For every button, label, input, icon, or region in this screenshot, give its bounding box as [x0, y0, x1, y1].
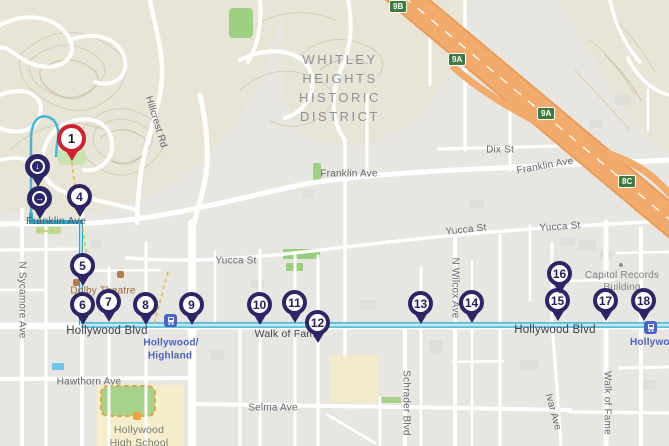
pin-tail: [554, 284, 566, 294]
pin-tail: [34, 209, 46, 219]
pin-tail: [77, 315, 89, 325]
street-label-hollywood-east: Hollywood Blvd: [514, 324, 595, 336]
pin-tail: [254, 315, 266, 325]
exit-shield-9b: 9B: [389, 0, 407, 13]
pin-tail: [312, 333, 324, 343]
pin-tail: [103, 312, 115, 322]
school-line1: Hollywood: [114, 424, 164, 436]
pin-tail: [289, 313, 301, 323]
map-canvas[interactable]: WHITLEY HEIGHTS HISTORIC DISTRICT Frankl…: [0, 0, 669, 446]
pin-number: 15: [551, 294, 564, 308]
street-label-selma: Selma Ave: [248, 403, 297, 414]
tour-pin-6[interactable]: 6: [70, 292, 95, 325]
pin-tail: [140, 315, 152, 325]
tour-pin-4[interactable]: 4: [67, 184, 92, 217]
street-label-hollywood-west: Hollywood Blvd: [66, 325, 147, 337]
pin-number: 10: [253, 298, 266, 312]
tour-pin-16[interactable]: 16: [547, 261, 572, 294]
pin-number: 16: [553, 267, 566, 281]
train-icon: [166, 316, 176, 326]
pin-tail: [77, 276, 89, 286]
pin-number: 11: [288, 296, 301, 310]
pin-tail: [415, 314, 427, 324]
pin-tail: [66, 151, 78, 161]
pin-number: 5: [79, 259, 86, 273]
church-block: [330, 355, 378, 403]
pin-number: 13: [414, 297, 427, 311]
tour-pin-9[interactable]: 9: [179, 292, 204, 325]
street-label-franklin-mid: Franklin Ave: [320, 169, 377, 180]
street-label-schrader: Schrader Blvd: [401, 370, 412, 435]
pin-number: 4: [76, 190, 83, 204]
street-label-yucca-west: Yucca St: [215, 256, 256, 267]
tour-pin-10[interactable]: 10: [247, 292, 272, 325]
pin-number: 18: [637, 294, 650, 308]
theatre-icon: [117, 271, 124, 278]
capitol-poi-dot: [619, 263, 623, 267]
poi-label-hollywood-high-school: Hollywood High School: [94, 424, 184, 446]
exit-shield-9a-north: 9A: [448, 53, 466, 66]
street-label-sycamore: N Sycamore Ave: [17, 261, 28, 338]
pin-tail: [638, 311, 650, 321]
street-label-walk-of-fame-vertical: Walk of Fame: [602, 371, 613, 435]
tour-pin-1[interactable]: 1: [57, 124, 86, 161]
tour-pin-8[interactable]: 8: [133, 292, 158, 325]
district-label: WHITLEY HEIGHTS HISTORIC DISTRICT: [299, 50, 381, 126]
metro-station-hollywood-vine-icon[interactable]: [644, 321, 657, 334]
tour-pin-7[interactable]: 7: [96, 289, 121, 322]
pin-number: 9: [188, 298, 195, 312]
pin-number: 12: [311, 316, 324, 330]
circle-down-arrow-icon: ↓: [30, 159, 45, 174]
pin-number: 7: [105, 295, 112, 309]
school-icon: [133, 412, 141, 420]
tour-pin-14[interactable]: 14: [459, 290, 484, 323]
pin-number: 8: [142, 298, 149, 312]
pin-tail: [186, 315, 198, 325]
pin-tail: [552, 311, 564, 321]
pin-number: 6: [79, 298, 86, 312]
station-label-hollywood-slash: Hollywood/: [143, 338, 198, 349]
station-label-hollywood-vine: Hollywood/V: [630, 337, 669, 348]
tour-pin-12[interactable]: 12: [305, 310, 330, 343]
pin-number: 14: [465, 296, 478, 310]
pin-number: 17: [599, 294, 612, 308]
street-label-hawthorn: Hawthorn Ave: [57, 377, 121, 388]
metro-station-hollywood-highland-icon[interactable]: [164, 314, 177, 327]
station-label-highland: Highland: [148, 351, 192, 362]
pin-number: 1: [68, 131, 75, 146]
pin-tail: [74, 207, 86, 217]
pool: [52, 363, 64, 370]
exit-shield-8c: 8C: [618, 175, 636, 188]
tour-pin-18[interactable]: 18: [631, 288, 656, 321]
train-icon: [646, 323, 656, 333]
street-label-dix: Dix St: [486, 145, 514, 156]
tour-pin-5[interactable]: 5: [70, 253, 95, 286]
tour-pin-2[interactable]: ↓: [25, 154, 50, 187]
tour-pin-11[interactable]: 11: [282, 290, 307, 323]
school-line2: High School: [110, 437, 169, 446]
pin-tail: [600, 311, 612, 321]
tour-pin-3[interactable]: →: [27, 186, 52, 219]
exit-shield-9a-south: 9A: [537, 107, 555, 120]
capitol-line1: Capitol Records: [585, 270, 659, 281]
pin-tail: [466, 313, 478, 323]
tour-pin-17[interactable]: 17: [593, 288, 618, 321]
tour-pin-13[interactable]: 13: [408, 291, 433, 324]
circle-right-arrow-icon: →: [32, 191, 47, 206]
